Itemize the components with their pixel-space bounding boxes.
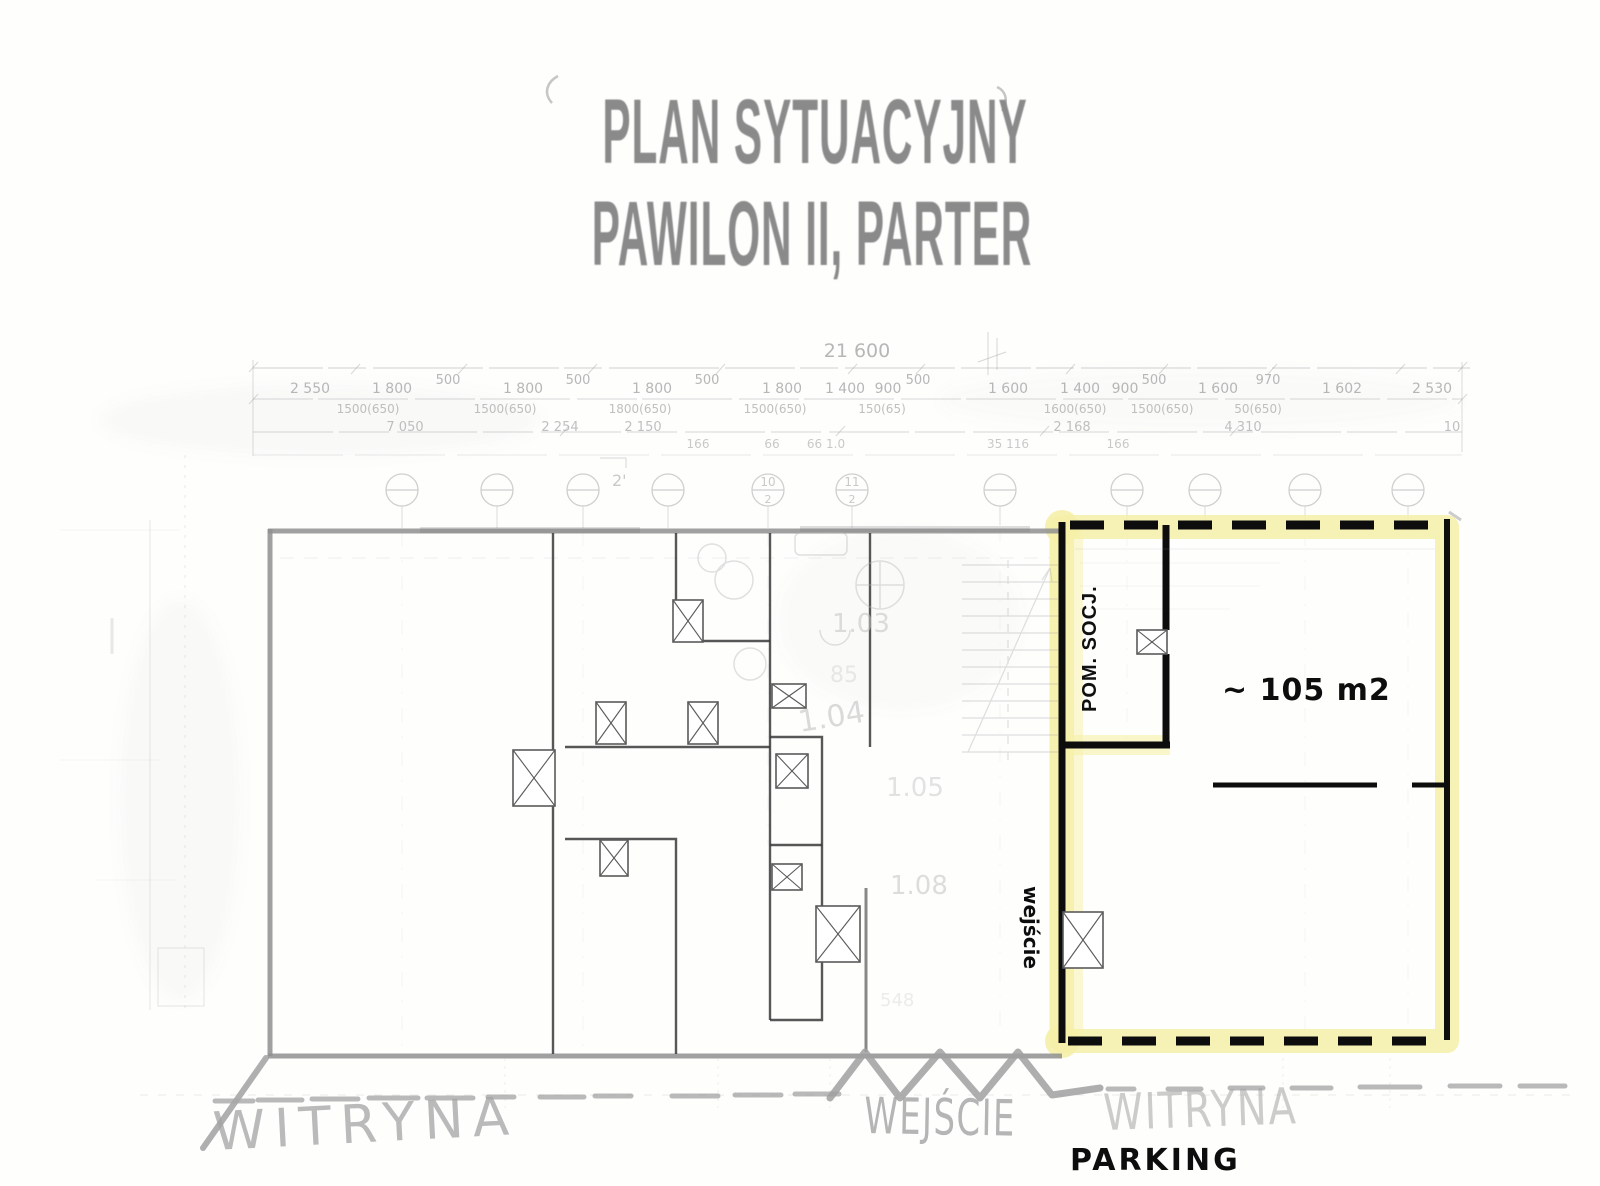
witryna-right-label: WITRYNA [1102,1077,1298,1142]
dimension-label: 500 [695,373,720,388]
wejscie-bottom-label: WEJŚCIE [864,1086,1016,1148]
grid-axis-denominator: 2 [765,493,772,506]
fixture-circle [715,561,753,599]
bottom-annotations: WITRYNA WEJŚCIE WITRYNA PARKING [140,1052,1580,1178]
room-number: 1.05 [886,773,944,803]
dimension-label: 1 800 [503,381,543,397]
grid-axis-marker [1111,474,1143,506]
dimension-label: 1500(650) [337,402,400,416]
area-label: ~ 105 m2 [1222,673,1391,708]
dimension-label: 1 400 [825,381,865,397]
total-dimension-label: 21 600 [824,340,890,362]
dimension-label: 1 600 [988,381,1028,397]
page-title-line2: PAWILON II, PARTER [592,183,1032,286]
dimension-label: 10 [1444,420,1461,435]
page-title-line1: PLAN SYTUACYJNY [602,81,1027,184]
parking-label: PARKING [1070,1143,1241,1178]
dimension-label: 500 [1142,373,1167,388]
dimension-break-mark [988,332,997,375]
highlighted-unit: POM. SOCJ. ~ 105 m2 wejście [1019,512,1461,1043]
room-number: 548 [880,990,914,1011]
dimension-label: 2 530 [1412,381,1452,397]
grid-axis-marker [567,474,599,506]
dimension-label: 166 [687,437,710,451]
window-symbol [596,702,626,744]
dimension-label: 1500(650) [1131,402,1194,416]
dimension-bracket [600,458,626,468]
dimension-label: 500 [566,373,591,388]
grid-axis-marker [481,474,513,506]
window-symbol [816,906,860,962]
window-symbol [1063,912,1103,968]
dimension-label: 2 254 [541,420,578,435]
dimension-label: 35 116 [987,437,1029,451]
floor-plan-drawing: PLAN SYTUACYJNY PAWILON II, PARTER 21 60… [0,0,1600,1186]
dimension-label: 150(65) [858,402,906,416]
dimension-label: 1 800 [632,381,672,397]
dimension-label: 1 600 [1198,381,1238,397]
grid-axis-marker [652,474,684,506]
dimension-label: 2 550 [290,381,330,397]
window-symbol [776,754,808,788]
window-symbol [688,702,718,744]
window-symbol [772,864,802,890]
grid-axis-marker [1189,474,1221,506]
pom-socj-label: POM. SOCJ. [1079,585,1101,712]
dimension-label: 66 1.0 [807,437,845,451]
window-symbol [1137,630,1167,654]
dimension-label: 50(650) [1234,402,1282,416]
dimension-label: 1500(650) [744,402,807,416]
dimension-label: 1 602 [1322,381,1362,397]
room-number: 1.03 [832,609,890,639]
window-symbol [673,600,703,642]
dimension-label: 900 [875,381,902,397]
dimension-label: 500 [906,373,931,388]
scan-ghost-lines [1080,563,1280,609]
dimension-label: 970 [1256,373,1281,388]
window-symbol [600,840,628,876]
grid-axis-marker [984,474,1016,506]
dimension-break-slash [978,352,1006,362]
grid-axis-marker: 112 [836,474,868,506]
dimension-label: 1500(650) [474,402,537,416]
grid-axis-marker: 102 [752,474,784,506]
room-number: 85 [830,663,858,688]
window-symbol [772,684,806,708]
dimension-label: 66 [764,437,779,451]
dimension-label: 1 800 [762,381,802,397]
grid-axis-number: 10 [760,475,775,489]
fixture-circle [734,648,766,680]
grid-axis-marker [386,474,418,506]
grid-axis-marker [1392,474,1424,506]
dimension-label: 166 [1107,437,1130,451]
wejscie-entrance-label: wejście [1019,886,1043,969]
grid-axis-denominator: 2 [849,493,856,506]
dimension-label: 2 150 [624,420,661,435]
dimension-label: 1600(650) [1044,402,1107,416]
dimension-label: 4 310 [1224,420,1261,435]
grid-axis-marker [1289,474,1321,506]
dimension-label: 900 [1112,381,1139,397]
dimension-label: 1800(650) [609,402,672,416]
dimension-note: 2' [612,471,627,490]
dimension-label: 500 [436,373,461,388]
scan-arc-left [547,76,558,103]
scanned-floor-plan-page: PLAN SYTUACYJNY PAWILON II, PARTER 21 60… [0,0,1600,1186]
grid-axis-number: 11 [844,475,859,489]
title-block: PLAN SYTUACYJNY PAWILON II, PARTER [592,81,1032,286]
dimension-label: 2 168 [1053,420,1090,435]
window-symbol [513,750,555,806]
dimension-label: 7 050 [386,420,423,435]
dimension-label: 1 400 [1060,381,1100,397]
room-number: 1.08 [890,871,948,901]
dimension-label: 1 800 [372,381,412,397]
